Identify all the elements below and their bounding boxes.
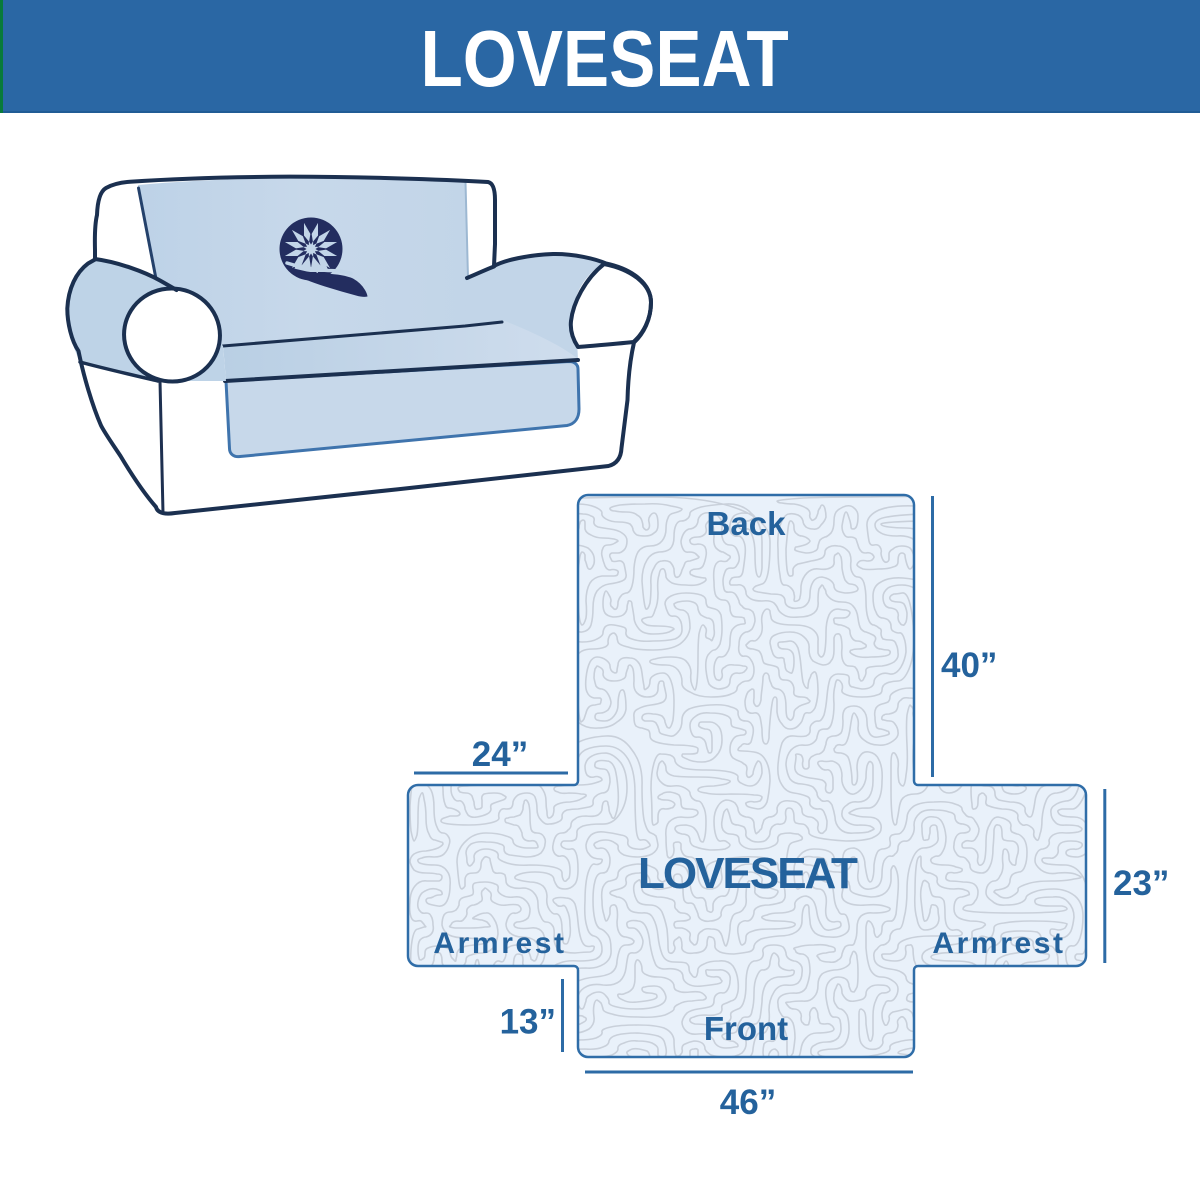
svg-text:24”: 24” (472, 735, 528, 774)
svg-text:LOVESEAT: LOVESEAT (638, 849, 858, 898)
svg-text:46”: 46” (720, 1083, 776, 1122)
svg-text:Armrest: Armrest (433, 927, 566, 960)
svg-text:23”: 23” (1113, 864, 1169, 903)
svg-text:Front: Front (704, 1010, 788, 1047)
svg-text:Armrest: Armrest (932, 927, 1065, 960)
svg-text:Back: Back (707, 505, 787, 542)
svg-text:13”: 13” (500, 1003, 556, 1042)
svg-text:40”: 40” (941, 646, 997, 685)
